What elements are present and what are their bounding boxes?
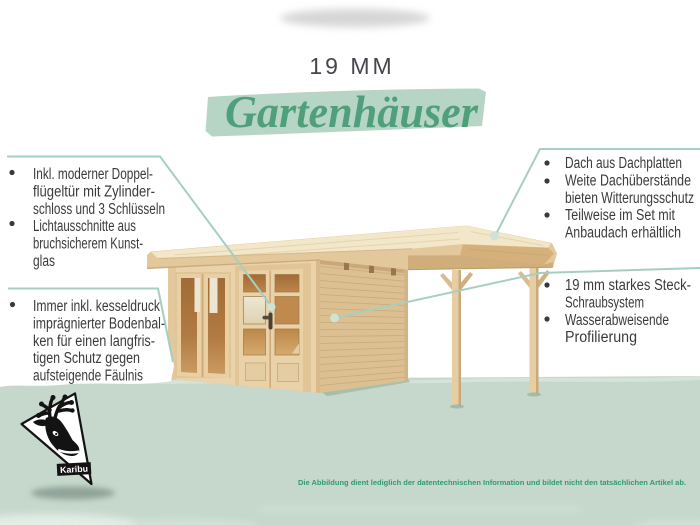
svg-text:Wasserabweisende: Wasserabweisende (565, 312, 669, 329)
svg-text:Dach aus Dachplatten: Dach aus Dachplatten (565, 155, 682, 172)
svg-text:bieten Witterungsschutz: bieten Witterungsschutz (565, 190, 694, 207)
svg-text:aufsteigende Fäulnis: aufsteigende Fäulnis (33, 368, 143, 385)
svg-text:Schraubsystem: Schraubsystem (565, 294, 644, 311)
svg-text:Inkl. moderner Doppel-: Inkl. moderner Doppel- (33, 166, 153, 183)
svg-text:tigen Schutz gegen: tigen Schutz gegen (33, 350, 140, 367)
svg-text:19 mm starkes Steck-: 19 mm starkes Steck- (565, 277, 691, 294)
svg-text:19 MM: 19 MM (309, 53, 394, 79)
svg-text:glas: glas (33, 253, 55, 270)
svg-text:Weite Dachüberstände: Weite Dachüberstände (565, 172, 691, 189)
svg-text:schloss und 3 Schlüsseln: schloss und 3 Schlüsseln (33, 201, 165, 218)
svg-text:flügeltür mit Zylinder-: flügeltür mit Zylinder- (33, 183, 155, 200)
svg-text:Die Abbildung dient lediglich: Die Abbildung dient lediglich der datent… (298, 478, 686, 487)
svg-text:Karibu: Karibu (60, 464, 88, 475)
svg-text:ken für einen langfris-: ken für einen langfris- (33, 333, 155, 350)
svg-text:Gartenhäuser: Gartenhäuser (225, 86, 479, 137)
svg-text:Immer inkl. kesseldruck: Immer inkl. kesseldruck (33, 298, 160, 315)
svg-text:Teilweise im Set mit: Teilweise im Set mit (565, 207, 676, 224)
svg-text:Lichtausschnitte aus: Lichtausschnitte aus (33, 218, 136, 235)
svg-text:bruchsicherem Kunst-: bruchsicherem Kunst- (33, 236, 143, 253)
svg-text:Anbaudach erhältlich: Anbaudach erhältlich (565, 225, 681, 242)
svg-text:Profilierung: Profilierung (565, 329, 637, 346)
svg-text:imprägnierter Bodenbal-: imprägnierter Bodenbal- (33, 315, 165, 332)
